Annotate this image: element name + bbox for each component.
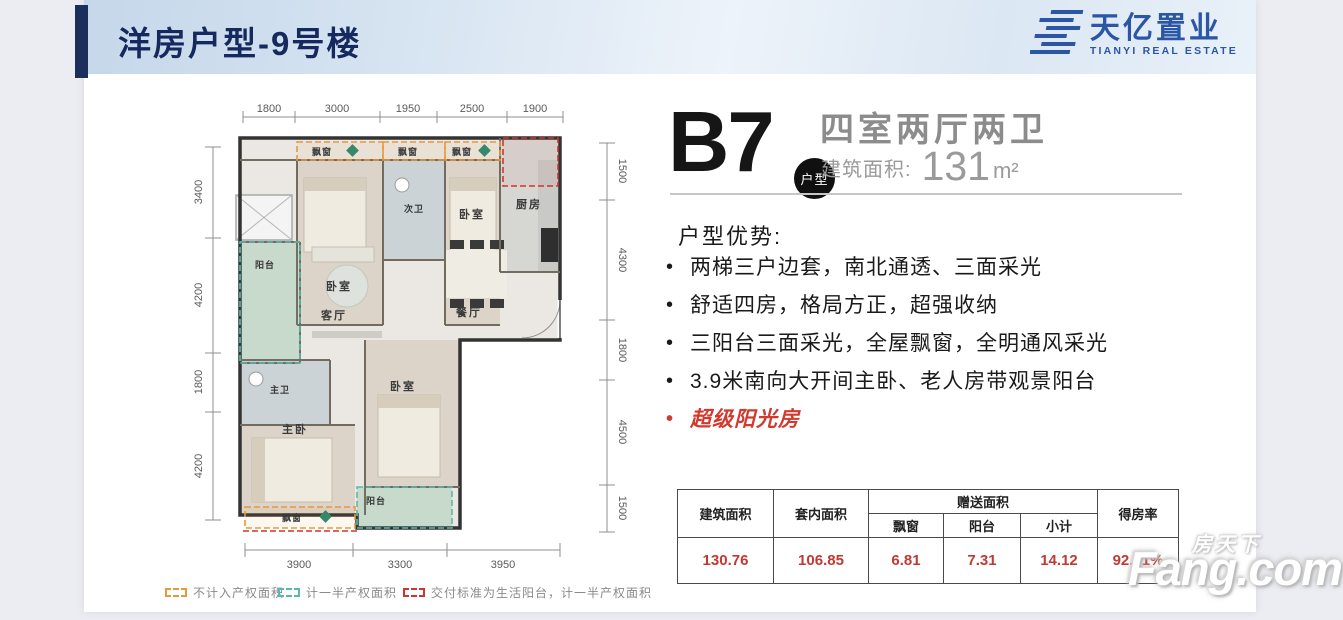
logo-lines-icon [1030, 6, 1084, 62]
dim-left-1: 4200 [193, 283, 205, 307]
dim-right-3: 4500 [616, 420, 628, 444]
bullet-icon: • [666, 370, 690, 393]
advantage-item: • 两梯三户边套，南北通透、三面采光 [666, 256, 1186, 279]
unit-area-label: 建筑面积: [821, 153, 912, 187]
advantage-text: 三阳台三面采光，全屋飘窗，全明通风采光 [690, 332, 1108, 355]
screenshot-canvas: 洋房户型-9号楼 天亿置业 TIANYI REAL ESTATE B7 户型 四… [0, 0, 1343, 620]
page-title: 洋房户型-9号楼 [118, 17, 361, 65]
dim-bottom-0: 3900 [287, 559, 311, 571]
room-label-kitchen: 厨房 [516, 197, 542, 211]
col-header-bay-window: 飘窗 [869, 514, 944, 538]
headline-divider [670, 193, 1182, 195]
unit-area-unit: m² [993, 158, 1019, 187]
room-label-master-bed: 主卧 [282, 422, 308, 436]
advantage-item: • 三阳台三面采光，全屋飘窗，全明通风采光 [666, 332, 1186, 355]
col-header-balcony: 阳台 [944, 514, 1021, 538]
room-label-bay-window-4: 飘窗 [282, 512, 302, 523]
dim-right-1: 4300 [616, 248, 628, 272]
room-label-bedroom-tr: 卧室 [459, 207, 485, 221]
logo-cn: 天亿置业 [1090, 12, 1238, 45]
room-label-second-bath: 次卫 [404, 203, 424, 214]
bullet-icon: • [666, 332, 690, 355]
dim-top-2: 1950 [396, 103, 420, 115]
col-header-inner-area: 套内面积 [774, 490, 869, 538]
area-table: 建筑面积 套内面积 赠送面积 得房率 飘窗 阳台 小计 130.76 106.8… [677, 489, 1179, 584]
dim-right-4: 1500 [616, 496, 628, 520]
dim-left-0: 3400 [193, 180, 205, 204]
room-label-bedroom-b: 卧室 [390, 379, 416, 393]
advantage-item: • 3.9米南向大开间主卧、老人房带观景阳台 [666, 370, 1186, 393]
dim-bottom-1: 3300 [388, 559, 412, 571]
col-header-gift-area: 赠送面积 [869, 490, 1098, 514]
dim-top-1: 3000 [325, 103, 349, 115]
advantages-list: • 两梯三户边套，南北通透、三面采光 • 舒适四房，格局方正，超强收纳 • 三阳… [666, 256, 1186, 446]
unit-area-value: 131 [922, 146, 990, 187]
dim-top-0: 1800 [257, 103, 281, 115]
dim-left-3: 4200 [193, 454, 205, 478]
floorplan-drawing: 飘窗 飘窗 飘窗 次卫 卧室 卧室 厨房 阳台 客厅 餐厅 主卫 主卧 卧室 飘… [140, 100, 660, 610]
advantage-text: 3.9米南向大开间主卧、老人房带观景阳台 [690, 370, 1096, 393]
value-subtotal: 14.12 [1021, 538, 1098, 584]
fang-watermark: 房天下 Fang.com [1128, 528, 1343, 612]
room-label-bay-window-2: 飘窗 [398, 146, 418, 157]
company-logo: 天亿置业 TIANYI REAL ESTATE [1030, 6, 1238, 62]
bullet-icon: • [666, 256, 690, 279]
room-label-master-bath: 主卫 [270, 384, 290, 395]
dim-bottom-2: 3950 [491, 559, 515, 571]
room-label-balcony-bottom: 阳台 [366, 495, 386, 506]
value-inner-area: 106.85 [774, 538, 869, 584]
room-label-bay-window-1: 飘窗 [312, 146, 332, 157]
bullet-icon: • [666, 408, 690, 431]
advantage-text: 超级阳光房 [690, 408, 800, 431]
dim-right-2: 1800 [616, 338, 628, 362]
advantages-heading: 户型优势: [678, 219, 782, 251]
logo-text: 天亿置业 TIANYI REAL ESTATE [1090, 12, 1238, 57]
room-label-living: 客厅 [320, 308, 347, 322]
advantage-text: 舒适四房，格局方正，超强收纳 [690, 294, 998, 317]
unit-code: B7 [668, 100, 773, 185]
header-accent-bar [75, 5, 88, 78]
dim-right-0: 1500 [616, 159, 628, 183]
logo-en: TIANYI REAL ESTATE [1090, 45, 1238, 57]
room-label-balcony-left: 阳台 [255, 259, 275, 270]
room-label-bay-window-3: 飘窗 [452, 146, 472, 157]
room-label-bedroom-tl: 卧室 [326, 279, 352, 293]
dim-top-3: 2500 [460, 103, 484, 115]
bullet-icon: • [666, 294, 690, 317]
value-gross-area: 130.76 [678, 538, 774, 584]
slide: 洋房户型-9号楼 天亿置业 TIANYI REAL ESTATE B7 户型 四… [84, 0, 1256, 612]
advantage-item-highlight: • 超级阳光房 [666, 408, 1186, 431]
advantage-item: • 舒适四房，格局方正，超强收纳 [666, 294, 1186, 317]
col-header-subtotal: 小计 [1021, 514, 1098, 538]
col-header-gross-area: 建筑面积 [678, 490, 774, 538]
advantage-text: 两梯三户边套，南北通透、三面采光 [690, 256, 1042, 279]
value-balcony: 7.31 [944, 538, 1021, 584]
dim-left-2: 1800 [193, 370, 205, 394]
room-label-dining: 餐厅 [455, 305, 482, 319]
floorplan: 飘窗 飘窗 飘窗 次卫 卧室 卧室 厨房 阳台 客厅 餐厅 主卫 主卧 卧室 飘… [140, 100, 660, 610]
unit-area: 建筑面积: 131 m² [821, 146, 1019, 187]
value-bay-window: 6.81 [869, 538, 944, 584]
dim-top-4: 1900 [523, 103, 547, 115]
watermark-en: Fang.com [1128, 541, 1342, 596]
